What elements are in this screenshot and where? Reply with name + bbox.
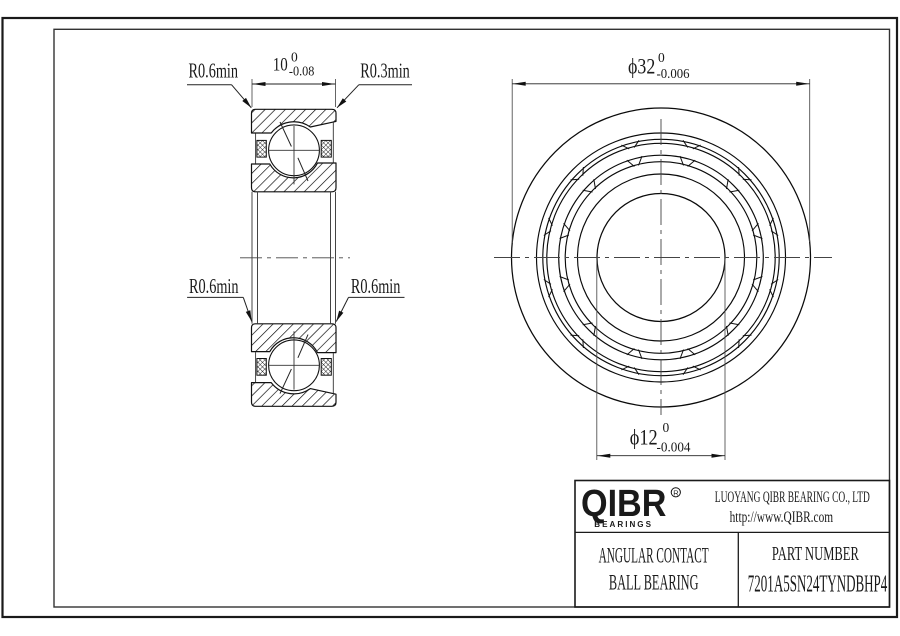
svg-text:R0.6min: R0.6min [189, 59, 239, 83]
svg-text:R0.3min: R0.3min [360, 59, 410, 83]
svg-text:10: 10 [273, 54, 288, 75]
svg-text:-0.006: -0.006 [657, 66, 690, 81]
svg-text:R0.6min: R0.6min [189, 274, 239, 298]
svg-text:PART NUMBER: PART NUMBER [772, 544, 859, 565]
svg-text:BALL BEARING: BALL BEARING [609, 569, 699, 594]
svg-text:LUOYANG QIBR BEARING CO., LTD: LUOYANG QIBR BEARING CO., LTD [715, 489, 870, 506]
svg-text:ϕ12: ϕ12 [630, 425, 658, 450]
svg-text:-0.08: -0.08 [289, 64, 315, 79]
svg-text:ANGULAR CONTACT: ANGULAR CONTACT [599, 543, 709, 568]
svg-text:7201A5SN24TYNDBHP4: 7201A5SN24TYNDBHP4 [748, 572, 888, 598]
svg-text:R0.6min: R0.6min [351, 274, 401, 298]
svg-text:R: R [673, 488, 679, 497]
svg-text:http://www.QIBR.com: http://www.QIBR.com [730, 509, 834, 526]
svg-text:0: 0 [663, 420, 670, 435]
svg-text:QIBR: QIBR [581, 483, 666, 525]
svg-text:BEARINGS: BEARINGS [594, 520, 653, 529]
svg-text:0: 0 [291, 50, 298, 65]
svg-text:-0.004: -0.004 [657, 439, 691, 454]
svg-text:0: 0 [658, 50, 665, 65]
svg-text:ϕ32: ϕ32 [628, 53, 655, 78]
